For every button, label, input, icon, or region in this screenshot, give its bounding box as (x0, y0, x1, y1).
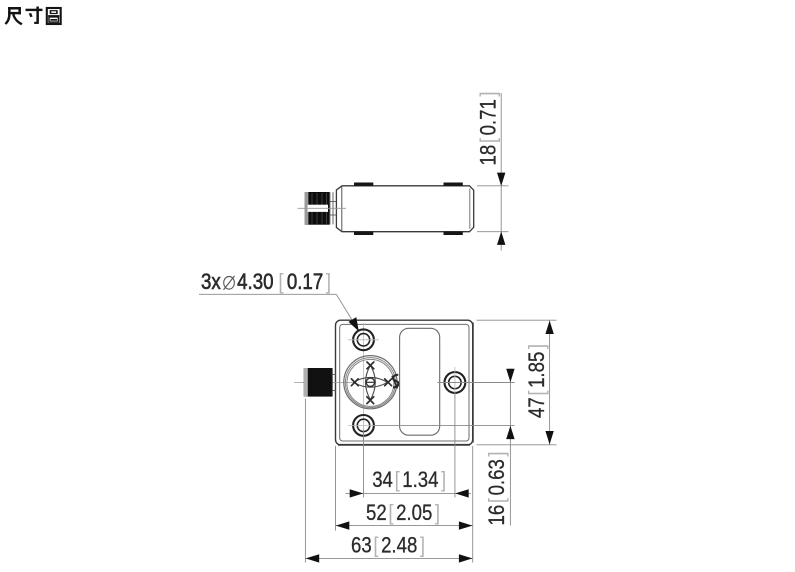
svg-text:47[1.85]: 47[1.85] (525, 344, 549, 418)
svg-text:0.17: 0.17 (287, 271, 323, 295)
svg-text:34[1.34]: 34[1.34] (372, 469, 446, 493)
svg-text:[: [ (278, 271, 283, 295)
svg-text:]: ] (326, 271, 331, 295)
svg-text:3x: 3x (201, 271, 221, 295)
svg-text:16[0.63]: 16[0.63] (485, 451, 509, 525)
svg-text:18[0.71]: 18[0.71] (477, 91, 501, 165)
svg-text:4.30: 4.30 (237, 271, 273, 295)
svg-text:52[2.05]: 52[2.05] (366, 502, 440, 526)
svg-text:63[2.48]: 63[2.48] (351, 534, 425, 558)
